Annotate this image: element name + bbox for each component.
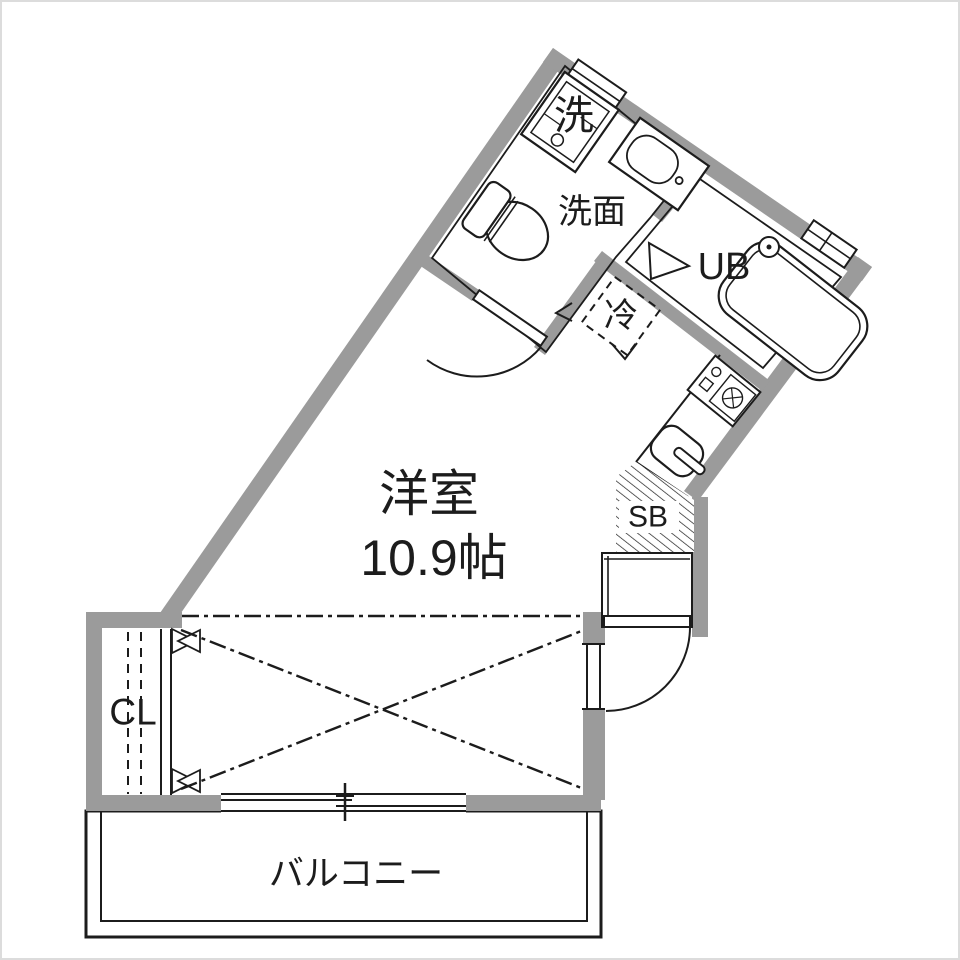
balcony-label: バルコニー (269, 855, 443, 894)
bath-faucet-dot (767, 245, 772, 250)
washroom-label: 洗面 (558, 193, 626, 231)
washing-machine-label: 洗 (554, 94, 594, 138)
floorplan-svg: バルコニー (0, 0, 960, 960)
closet-label: CL (109, 692, 156, 733)
wall-lower-right (583, 708, 605, 800)
wall-left (86, 612, 102, 811)
shoe-box-label: SB (628, 501, 668, 534)
main-room-name: 洋室 (379, 466, 479, 522)
window-right-wall (581, 644, 607, 709)
unit-bath-label: UB (698, 246, 751, 288)
floorplan-image: バルコニー (0, 0, 960, 960)
entry-door-leaf (604, 616, 690, 627)
wall-right-vertical (692, 497, 708, 637)
balcony: バルコニー (86, 811, 601, 937)
main-room-size: 10.9帖 (360, 530, 507, 586)
wall-closet-top (86, 612, 182, 628)
refrigerator-label: 冷 (604, 297, 638, 335)
